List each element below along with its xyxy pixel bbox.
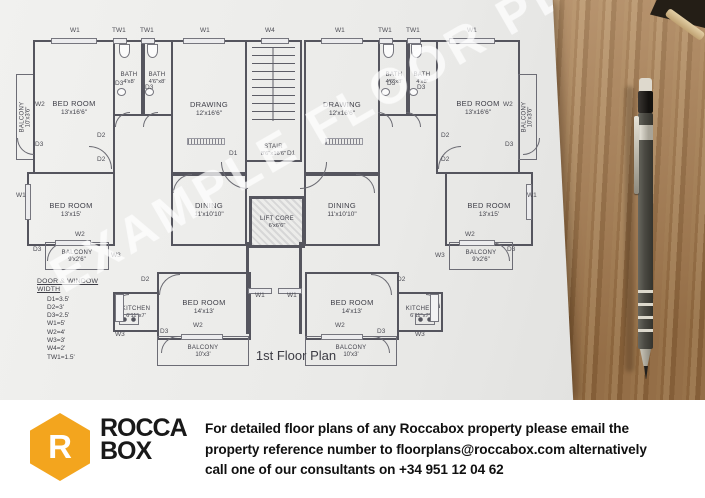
room-label: DINING — [328, 201, 356, 210]
room-bedroom-mid-right: BED ROOM13'x15' — [445, 172, 533, 246]
toilet-icon — [147, 44, 158, 58]
room-size: 11'x10'10" — [327, 211, 356, 218]
footer-copy: For detailed floor plans of any Roccabox… — [205, 419, 647, 481]
toilet-icon — [411, 44, 422, 58]
roccabox-logo-text: ROCCA BOX — [100, 417, 187, 463]
room-size: 9'x2'6" — [68, 257, 85, 263]
wall-tag: W3 — [111, 252, 121, 259]
wall-tag: D2 — [441, 132, 449, 139]
room-size: 13'x15' — [479, 211, 499, 218]
room-label: BATH — [121, 72, 138, 78]
room-label: DINING — [195, 201, 223, 210]
door-arc — [523, 138, 540, 155]
door-window-legend: DOOR & WINDOW WIDTH D1=3.5' D2=3' D3=2.5… — [37, 278, 113, 362]
room-label: DRAWING — [323, 100, 361, 109]
window-mark — [187, 138, 225, 145]
room-size: 10'x3'6" — [528, 107, 534, 128]
wall-tag: D2 — [97, 156, 105, 163]
wall-tag: D1 — [229, 150, 237, 157]
pencil-ring — [638, 290, 653, 293]
window-mark — [51, 38, 97, 44]
room-size: 12'x16'6" — [329, 110, 355, 117]
wall-tag: D3 — [145, 84, 153, 91]
wall-tag: W2 — [503, 101, 513, 108]
roccabox-logo-icon: R — [30, 413, 90, 481]
pencil-clip — [634, 116, 639, 194]
legend-item: W3=3' — [37, 337, 113, 345]
wall-tag: TW1 — [406, 27, 420, 34]
room-size: 4'x8' — [123, 79, 135, 85]
wall-tag: W1 — [335, 27, 345, 34]
window-mark — [261, 38, 289, 44]
wall-tag: W2 — [193, 322, 203, 329]
window-mark — [325, 138, 363, 145]
pencil-ferrule — [638, 91, 653, 113]
pencil-shadow — [625, 86, 634, 372]
room-label: LIFT CORE — [260, 216, 294, 222]
plan-caption: 1st Floor Plan — [211, 348, 381, 363]
footer-band: R ROCCA BOX For detailed floor plans of … — [0, 400, 705, 498]
wall-tag: W4 — [265, 27, 275, 34]
wall-tag: W1 — [16, 192, 26, 199]
legend-item: W2=4' — [37, 329, 113, 337]
wall-tag: W2 — [335, 322, 345, 329]
room-label: BED ROOM — [182, 298, 225, 307]
sink-icon — [381, 88, 390, 96]
room-size: 13'x16'6" — [465, 109, 491, 116]
screenshot-root: BALCONY10'x3'6" BED ROOM13'x16'6" BATH4'… — [0, 0, 705, 498]
wall-tag: W2 — [465, 231, 475, 238]
toilet-icon — [383, 44, 394, 58]
window-mark — [459, 240, 495, 246]
pencil-tip — [644, 366, 648, 379]
room-size: 10'x3'6" — [26, 107, 32, 128]
wall-tag: D3 — [115, 80, 123, 87]
wall-tag: D2 — [397, 276, 405, 283]
room-size: 8'6"x16'6" — [261, 151, 286, 157]
wall-tag: D2 — [441, 156, 449, 163]
room-label: BED ROOM — [467, 201, 510, 210]
counter-icon — [115, 294, 124, 322]
wall-tag: TW1 — [378, 27, 392, 34]
wall-tag: D3 — [505, 141, 513, 148]
wall-tag: D3 — [160, 328, 168, 335]
legend-item: D3=2.5' — [37, 312, 113, 320]
room-label: BATH — [386, 72, 403, 78]
room-stair: STAIR8'6"x16'6" — [245, 40, 302, 162]
room-size: 13'x15' — [61, 211, 81, 218]
wall-tag: D2 — [97, 132, 105, 139]
wall-tag: D3 — [377, 328, 385, 335]
sink-icon — [117, 88, 126, 96]
window-mark — [183, 38, 225, 44]
footer-line-2: property reference number to floorplans@… — [205, 440, 647, 461]
room-label: BED ROOM — [52, 99, 95, 108]
legend-item: W1=5' — [37, 320, 113, 328]
room-size: 9'x2'6" — [472, 257, 489, 263]
pencil-cone — [640, 349, 651, 366]
room-lift-core: LIFT CORE6'x6'6" — [249, 196, 305, 248]
room-label: BATH — [414, 72, 431, 78]
pencil-body — [638, 113, 653, 349]
photo-area: BALCONY10'x3'6" BED ROOM13'x16'6" BATH4'… — [0, 0, 705, 400]
wall-tag: W3 — [115, 331, 125, 338]
room-size: 13'x16'6" — [61, 109, 87, 116]
legend-item: D1=3.5' — [37, 296, 113, 304]
pencil-ring — [638, 316, 653, 319]
wall-tag: W2 — [35, 101, 45, 108]
footer-line-3: call one of our consultants on +34 951 1… — [205, 460, 647, 481]
window-mark — [181, 334, 223, 340]
room-label: BED ROOM — [49, 201, 92, 210]
room-size: 11'x10'10" — [194, 211, 223, 218]
room-drawing-right: DRAWING12'x16'6" — [304, 40, 380, 176]
footer-line-1: For detailed floor plans of any Roccabox… — [205, 419, 647, 440]
room-size: 10'x3' — [195, 352, 210, 358]
window-mark — [25, 184, 31, 220]
legend-item: D2=3' — [37, 304, 113, 312]
wall-tag: TW1 — [112, 27, 126, 34]
room-size: 12'x16'6" — [196, 110, 222, 117]
wall-tag: D2 — [141, 276, 149, 283]
room-size: 14'x13' — [342, 308, 362, 315]
logo-mark: R — [48, 428, 72, 466]
window-mark — [449, 38, 495, 44]
room-size: 14'x13' — [194, 308, 214, 315]
room-label: BED ROOM — [456, 99, 499, 108]
wall-tag: D3 — [387, 80, 395, 87]
wall-tag: D3 — [33, 246, 41, 253]
room-label: BALCONY — [62, 250, 93, 256]
room-bedroom-mid-left: BED ROOM13'x15' — [27, 172, 115, 246]
wall-tag: W1 — [467, 27, 477, 34]
floor-plan-drawing: BALCONY10'x3'6" BED ROOM13'x16'6" BATH4'… — [15, 26, 542, 378]
wall-tag: W3 — [435, 252, 445, 259]
window-mark — [55, 240, 91, 246]
room-size: 6'x6'6" — [269, 223, 286, 229]
room-label: BED ROOM — [330, 298, 373, 307]
toilet-icon — [119, 44, 130, 58]
legend-item: TW1=1.5' — [37, 354, 113, 362]
floorplan-paper: BALCONY10'x3'6" BED ROOM13'x16'6" BATH4'… — [0, 0, 705, 400]
wall-tag: D1 — [287, 150, 295, 157]
wall-tag: W1 — [200, 27, 210, 34]
room-label: DRAWING — [190, 100, 228, 109]
legend-item: W4=2' — [37, 345, 113, 353]
window-mark — [321, 334, 363, 340]
pencil-silver-band — [638, 125, 653, 140]
wall-tag: W1 — [527, 192, 537, 199]
wall-tag: D3 — [417, 84, 425, 91]
paper-shadow-wrap: BALCONY10'x3'6" BED ROOM13'x16'6" BATH4'… — [0, 0, 705, 400]
room-label: BATH — [149, 72, 166, 78]
stair-treads — [252, 47, 295, 121]
legend-title: DOOR & WINDOW WIDTH — [37, 278, 113, 295]
wall-tag: D3 — [507, 246, 515, 253]
mechanical-pencil — [635, 78, 657, 384]
wall-tag: W1 — [287, 292, 297, 299]
logo-line-2: BOX — [100, 440, 187, 463]
wall-tag: W1 — [255, 292, 265, 299]
pencil-ring — [638, 303, 653, 306]
pencil-ring — [638, 329, 653, 332]
room-label: STAIR — [264, 144, 283, 150]
window-mark — [526, 184, 532, 220]
wall-tag: TW1 — [140, 27, 154, 34]
window-mark — [321, 38, 363, 44]
wall-tag: W3 — [415, 331, 425, 338]
counter-icon — [430, 294, 439, 322]
wall-tag: D3 — [35, 141, 43, 148]
wall-tag: W1 — [70, 27, 80, 34]
wall-tag: W2 — [75, 231, 85, 238]
